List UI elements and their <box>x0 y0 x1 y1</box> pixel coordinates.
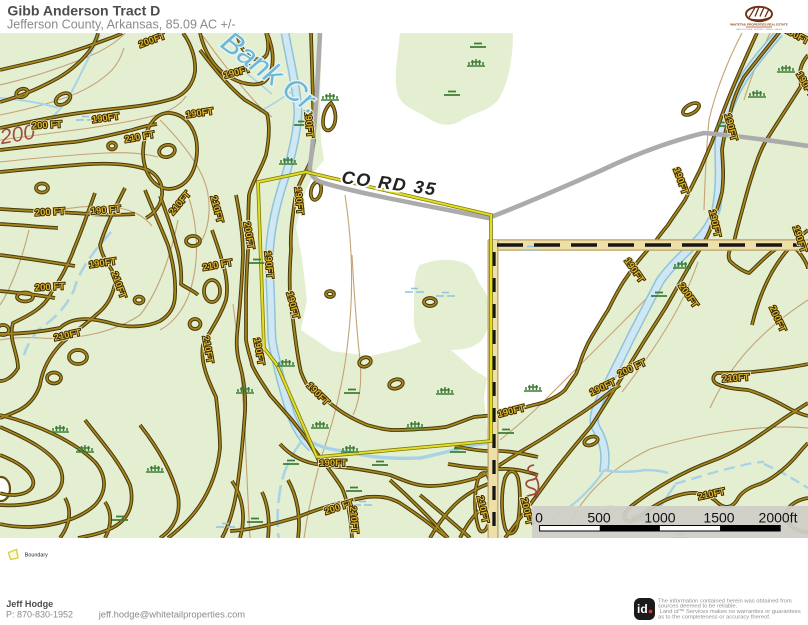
svg-text:1500: 1500 <box>703 510 734 526</box>
svg-text:0: 0 <box>535 510 543 526</box>
svg-text:Boundary: Boundary <box>25 553 48 559</box>
svg-text:id: id <box>637 602 648 616</box>
svg-text:Jefferson County, Arkansas, 85: Jefferson County, Arkansas, 85.09 AC +/- <box>7 18 236 32</box>
svg-text:500: 500 <box>587 510 611 526</box>
svg-text:Jeff Hodge: Jeff Hodge <box>6 599 53 609</box>
svg-text:jeff.hodge@whitetailproperties: jeff.hodge@whitetailproperties.com <box>98 609 246 620</box>
svg-text:LAND FOR SALE - HUNTING - RANC: LAND FOR SALE - HUNTING - RANCH - FARMS <box>736 28 783 31</box>
svg-text:as to the completeness or accu: as to the completeness or accuracy there… <box>658 614 771 620</box>
svg-text:P: 870-830-1952: P: 870-830-1952 <box>6 610 73 620</box>
svg-text:Gibb Anderson Tract D: Gibb Anderson Tract D <box>7 3 160 19</box>
svg-text:2000ft: 2000ft <box>759 510 798 526</box>
svg-text:WHITETAIL PROPERTIES REAL ESTA: WHITETAIL PROPERTIES REAL ESTATE <box>730 23 787 27</box>
svg-text:1000: 1000 <box>644 510 675 526</box>
